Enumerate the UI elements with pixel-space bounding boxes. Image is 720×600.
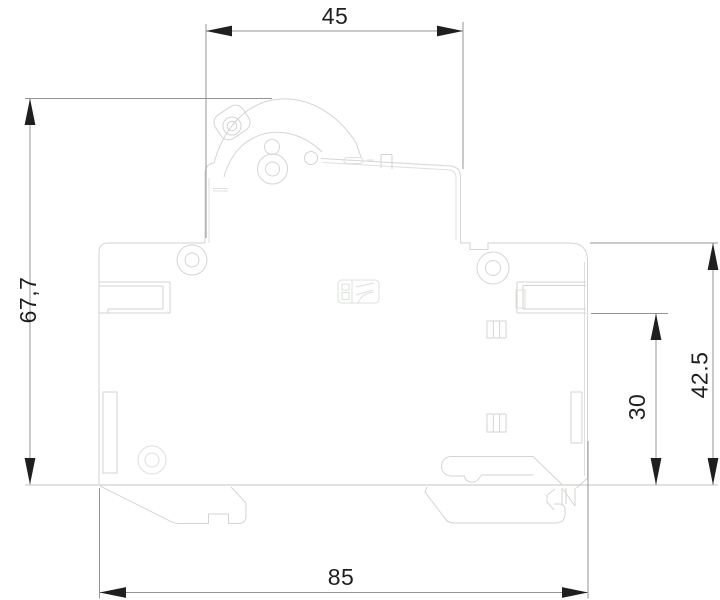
terminal-left (99, 282, 170, 313)
clip-lower-right (487, 414, 506, 432)
mechanism-pin-right (305, 152, 318, 165)
center-clip-detail (342, 280, 374, 303)
dimension-top-width: 45 (206, 3, 463, 238)
dimension-upper-height: 42.5 (590, 243, 718, 485)
body-left-top (99, 243, 205, 484)
center-clip-feature (338, 280, 379, 303)
arrow-up-icon (708, 243, 719, 270)
lever-guard-outer-arc (214, 99, 361, 163)
screw-left-inner (185, 253, 199, 267)
mechanism-pin-small (265, 140, 280, 155)
release-tab (441, 457, 562, 485)
mechanism-axle-inner (266, 162, 280, 176)
arrow-left-icon (206, 26, 232, 37)
din-rail-feet (100, 457, 588, 524)
dim-label-overall-height: 67,7 (15, 277, 41, 324)
arrow-up-icon (651, 314, 662, 341)
arrow-right-icon (437, 26, 463, 37)
dimension-lower-height: 30 (591, 314, 668, 486)
technical-drawing: 45 67,7 42.5 30 85 (0, 0, 720, 600)
rivet-lower-left-inner (145, 453, 159, 467)
arrow-down-icon (25, 458, 36, 485)
dim-label-overall-depth: 85 (328, 564, 355, 590)
clip-upper-right (487, 321, 506, 338)
face-top-inner (323, 163, 456, 241)
terminals-and-slots (99, 280, 586, 473)
rivet-lower-left-outer (138, 446, 166, 474)
foot-right (425, 487, 565, 523)
mechanism-axle-outer (258, 154, 288, 184)
drawing-canvas: 45 67,7 42.5 30 85 (0, 0, 720, 600)
arrow-right-icon (562, 587, 588, 598)
screw-left-outer (177, 245, 207, 275)
slot-left (103, 392, 117, 473)
slot-right (571, 392, 582, 443)
arrow-down-icon (651, 458, 662, 485)
dim-label-top-width: 45 (322, 3, 349, 29)
face-top-edge (321, 159, 461, 244)
lever-base-ledge (213, 189, 228, 192)
toggle-lever-handle (210, 102, 253, 144)
breaker-body-outline (99, 99, 588, 484)
dim-label-lower-height: 30 (624, 394, 650, 421)
screw-right-outer (477, 252, 509, 284)
body-top-right (461, 243, 588, 478)
arrow-down-icon (708, 458, 719, 485)
foot-right-detail (547, 478, 588, 510)
foot-left (100, 486, 246, 524)
arrow-left-icon (100, 587, 127, 598)
dim-label-upper-height: 42.5 (687, 352, 713, 399)
arrow-up-icon (25, 99, 36, 126)
terminal-right (517, 282, 586, 313)
dimension-overall-depth: 85 (100, 441, 589, 599)
screw-right-inner (486, 261, 501, 276)
